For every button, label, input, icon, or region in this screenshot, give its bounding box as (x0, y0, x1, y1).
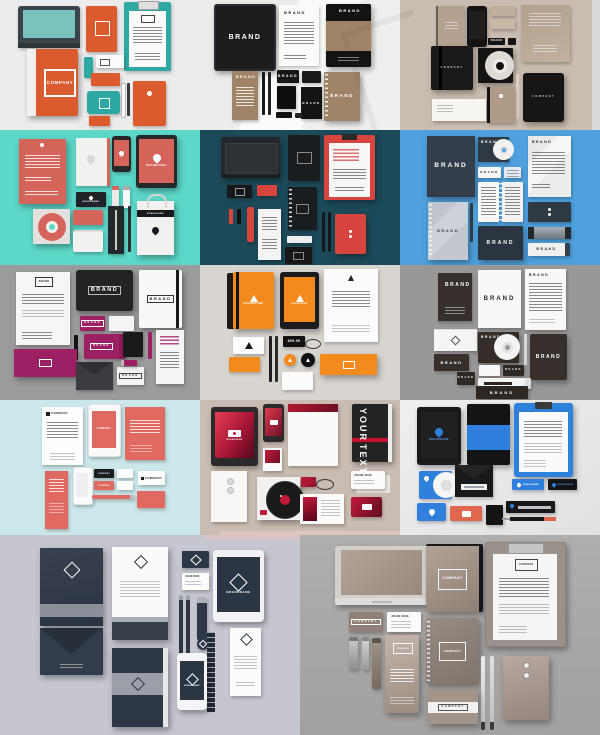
brand-wordmark: BRAND (536, 248, 556, 252)
brand-wordmark: BRAND (490, 391, 514, 395)
right-page (502, 182, 523, 222)
company-wordmark: COMPANY (397, 648, 409, 650)
letterhead: COMPANY (42, 407, 83, 465)
notebook-navy: BRAND (478, 226, 523, 260)
dot (548, 213, 551, 216)
pen-magenta (148, 332, 152, 359)
cd-hole (500, 146, 508, 154)
panel-orange-teal: COMPANY (0, 0, 200, 130)
pen-grip (544, 517, 556, 521)
notebook-black-blue (467, 404, 510, 465)
pen-bar (464, 486, 484, 488)
footer-lines (499, 626, 527, 634)
pen (470, 203, 473, 242)
logo-mark (100, 59, 110, 66)
pen (481, 656, 485, 730)
cd-disc (493, 139, 514, 160)
phone-white: BRANDNAME (177, 653, 207, 710)
cd-hole (502, 342, 513, 353)
card-wallet (87, 91, 120, 114)
panel-orange-black: BRANDNAME BRANDNAME $99.99 (200, 265, 400, 400)
open-notebook (478, 182, 523, 222)
calculator (123, 332, 143, 357)
pen (186, 595, 190, 654)
text-lines (47, 422, 78, 440)
cd-hole (46, 221, 58, 233)
clipboard-red (324, 135, 375, 200)
tag-string (305, 339, 321, 349)
phone-screen: BRANDNAME (180, 661, 204, 700)
notebook-small (133, 81, 166, 126)
clip (508, 543, 544, 554)
envelope-small: COMPANY (428, 690, 478, 724)
clip (342, 134, 357, 140)
logo-dot (349, 230, 352, 233)
company-wordmark: COMPANY (438, 704, 467, 711)
diamond-logo-icon (134, 555, 148, 569)
brand-wordmark: BRAND (39, 281, 50, 284)
magenta-lines (160, 336, 179, 346)
phone (112, 136, 131, 172)
tablet-screen: BRANDNAME (139, 139, 174, 183)
clipboard (124, 2, 171, 71)
diamond-logo-icon (229, 573, 247, 591)
left-page (478, 182, 499, 222)
pin-logo-icon (151, 153, 162, 164)
business-card-black (227, 185, 252, 198)
blue-band (467, 425, 510, 450)
phone-screen (265, 408, 282, 436)
footer-lines (25, 191, 58, 197)
logo-frame: BRAND (35, 277, 53, 287)
tube-cap (565, 227, 571, 239)
brandname-wordmark: BRANDNAME (147, 213, 164, 215)
letterhead (324, 269, 378, 342)
pencil (269, 336, 272, 382)
text-lines (25, 177, 51, 183)
tablet: BRAND (76, 270, 133, 311)
panel-brown-brand: BRAND BRAND BRAND BRAND BRAND BRAND (400, 265, 600, 400)
vinyl-record (266, 481, 304, 519)
business-card-dark: BRAND (434, 354, 469, 371)
business-card-black: BRANDNAME (76, 192, 106, 207)
cd-case (33, 209, 70, 244)
elastic-band (236, 272, 239, 329)
panel-magenta: BRAND BRAND BRAND BRAND BRAND (0, 265, 200, 400)
diamond-logo-icon (199, 640, 207, 648)
notebook-orange: BRANDNAME (233, 272, 274, 329)
diamond-logo-icon (451, 336, 461, 346)
your-word: YOUR (358, 408, 367, 442)
spiral-binding (499, 183, 502, 221)
envelope-black: BRAND (301, 87, 322, 119)
tablet: BRANDNAME (211, 407, 258, 466)
pin-logo-icon (509, 503, 515, 509)
cd-disc (494, 334, 520, 360)
pen (524, 334, 527, 365)
card-coral (137, 491, 165, 508)
logo-plate (270, 420, 278, 425)
laptop-screen (23, 10, 75, 38)
spiral-binding (427, 621, 430, 681)
business-card-magenta: BRAND (80, 316, 105, 331)
white-band: COMPANY (428, 702, 478, 713)
tree-logo-icon (288, 358, 292, 362)
tablet-screen: COMPANY (92, 411, 116, 448)
brand-wordmark: BRAND (330, 94, 354, 99)
your-text-wordmark: YOUR TEXT (358, 408, 367, 475)
company-wordmark: COMPANY (98, 473, 110, 475)
letterhead-paper (329, 143, 370, 197)
brandname-wordmark: BRANDNAME (523, 484, 539, 486)
letterhead: BRAND (525, 269, 566, 330)
brand-wordmark: BRAND (445, 283, 471, 288)
brand-wordmark: BRAND (88, 286, 121, 296)
brand-wordmark: BRAND (491, 40, 503, 43)
text-lines (49, 479, 64, 493)
logo-frame (235, 188, 245, 196)
brandname-wordmark: BRANDNAME (244, 303, 264, 306)
panel-coral-turquoise: BRANDNAME BRANDNAME BRANDNAME (0, 130, 200, 265)
brand-wordmark: BRAND (529, 274, 549, 278)
pen-horizontal (92, 495, 135, 499)
panel-navy-diamond: JOHN DOE BRANDNAME BRANDNAME (0, 535, 300, 735)
panel-black-red (200, 130, 400, 265)
company-wordmark: COMPANY (145, 477, 162, 480)
address-text (60, 664, 83, 669)
logo-frame (296, 204, 309, 214)
logo-dot (349, 235, 352, 238)
wallet-magenta: BRAND (84, 334, 126, 359)
notepad (288, 404, 338, 466)
laptop (18, 6, 80, 48)
pen (179, 595, 183, 654)
logo-frame (297, 152, 312, 164)
pen-black (237, 209, 241, 224)
john-doe-card: JOHN DOE (351, 471, 385, 489)
hang-tag-red (301, 477, 316, 487)
spiral-binding (429, 204, 432, 258)
usb-drive (276, 112, 292, 118)
contact-lines (354, 480, 374, 486)
your-text-notebook: YOUR TEXT (352, 404, 392, 462)
text-lines (284, 22, 314, 46)
text-lines (499, 578, 549, 598)
phone-screen (76, 473, 88, 497)
logo-square (46, 412, 50, 416)
pencil (275, 336, 278, 382)
vinyl-hole (280, 495, 282, 497)
brand-wordmark: BRAND (458, 377, 475, 380)
spiral-notebook: COMPANY (426, 618, 479, 684)
panel-taupe-company: COMPANY COMPANY COMPANY JOHN DOE COMPANY (300, 535, 600, 735)
cd-hole (493, 59, 507, 73)
business-card-red (257, 185, 277, 196)
spiral-notebook-gray: BRAND (428, 202, 468, 260)
cd-sleeve (478, 48, 513, 83)
notebook-white: BRAND (139, 270, 182, 328)
business-card-white-small (479, 365, 500, 376)
diamond-logo-icon (64, 562, 81, 579)
brand-wordmark: BRAND (486, 241, 514, 246)
brand-wordmark: BRAND (532, 141, 552, 145)
flyer-white (230, 628, 261, 696)
footer-lines (335, 187, 364, 193)
logo-dot (499, 94, 503, 98)
envelope-flap (76, 362, 112, 375)
usb-magenta (121, 360, 137, 366)
logo-dot (233, 432, 236, 435)
footer-lines (533, 45, 557, 53)
laptop-screen (341, 550, 422, 595)
footer-lines (332, 325, 370, 333)
tube-cap (528, 227, 534, 239)
envelope-flap (455, 465, 493, 479)
pen-bar (484, 382, 512, 385)
business-card-white (117, 469, 133, 478)
brandname-wordmark: BRANDNAME (429, 439, 449, 442)
marker-red (247, 207, 254, 242)
laptop (335, 546, 428, 605)
pen-horizontal (502, 517, 556, 521)
company-wordmark: COMPANY (442, 577, 462, 581)
usb-block (508, 38, 516, 45)
footer-lines (135, 53, 160, 60)
spine-white (388, 404, 392, 462)
text-lines (321, 500, 340, 516)
usb-drive (123, 186, 130, 208)
business-card-small (282, 372, 313, 390)
envelope-tall (503, 656, 549, 720)
shopping-bag: BRANDNAME (137, 201, 174, 255)
logo-dot (147, 91, 152, 96)
pen-box-black (506, 501, 555, 513)
notepad-small (263, 448, 282, 471)
pen-white (121, 83, 126, 118)
logo-mark (141, 15, 155, 23)
company-logo-frame: COMPANY (515, 559, 538, 571)
business-card-orange (91, 73, 120, 86)
spiral-notebook-black (288, 187, 317, 230)
pen-red (229, 209, 233, 224)
brand-wordmark: BRAND (90, 343, 113, 350)
footer-lines (532, 184, 550, 190)
laptop-base (335, 598, 428, 605)
text-lines (499, 604, 549, 614)
red-text-lines (333, 149, 359, 163)
hardcover-book: COMPANY (27, 49, 78, 116)
pen-black (127, 83, 130, 116)
business-card-navy (182, 551, 209, 568)
business-card-taupe: COMPANY (349, 612, 383, 632)
tablet-screen: BRANDNAME (215, 412, 254, 458)
company-wordmark: COMPANY (97, 428, 112, 431)
text-lines (445, 22, 458, 30)
header: COMPANY (46, 411, 68, 416)
tablet: BRANDNAME (417, 407, 461, 465)
text-lines (505, 187, 520, 215)
company-wordmark: COMPANY (98, 485, 110, 487)
contact-lines (391, 621, 411, 629)
footer-lines (529, 319, 555, 325)
business-card-black: BRANDNAME (548, 479, 577, 490)
pin-logo-icon (427, 508, 435, 516)
watermark-strip (205, 535, 300, 540)
pin-logo-icon (88, 195, 94, 201)
cd-sleeve-blue (419, 471, 452, 499)
letterhead-coral (125, 407, 165, 460)
text-lines (390, 669, 414, 682)
business-card-lines (504, 167, 521, 178)
letterhead: BRAND (16, 272, 70, 345)
letterhead: BRAND (279, 5, 319, 66)
text-lines (529, 283, 562, 311)
sleeve-logo (260, 510, 267, 515)
company-wordmark: COMPANY (351, 619, 380, 626)
pen (490, 656, 494, 730)
phone (467, 6, 487, 47)
flyer-coral (45, 471, 68, 529)
tube-tall (372, 638, 381, 689)
business-card-white: BRAND (478, 167, 501, 178)
tablet-screen: BRANDNAME (217, 557, 260, 612)
brand-square: BRAND (457, 372, 475, 385)
text-lines (262, 217, 277, 231)
company-wordmark: COMPANY (51, 412, 68, 415)
pen-box (108, 206, 124, 254)
tree-logo-icon (348, 275, 354, 281)
brand-wordmark: BRAND (302, 102, 320, 105)
diamond-logo-icon (190, 554, 201, 565)
business-card-black: COMPANY (94, 469, 114, 478)
phone-screen (469, 11, 485, 39)
clipboard-blue (514, 403, 573, 477)
brandname-wordmark: BRANDNAME (227, 439, 243, 441)
footer-lines (390, 697, 414, 704)
text-lines (130, 420, 160, 435)
tree-logo-icon (245, 342, 253, 349)
business-card-blue: BRANDNAME (512, 479, 544, 490)
diamond-logo-icon (186, 673, 199, 686)
company-wordmark: COMPANY (444, 650, 462, 653)
pen-tube (528, 227, 571, 239)
text-lines (529, 13, 561, 27)
envelope-black (455, 465, 493, 497)
business-card-black: BRAND (277, 70, 299, 83)
company-logo-frame: COMPANY (438, 569, 467, 590)
tablet: BRANDNAME (280, 272, 319, 329)
trackpad-notch (372, 601, 392, 603)
folder-navy: BRAND (427, 136, 475, 197)
envelope-navy (40, 628, 103, 675)
envelope-orange (320, 354, 377, 375)
calculator (277, 86, 296, 109)
tablet-screen: BRANDNAME (421, 412, 457, 458)
brand-wordmark: BRAND (434, 163, 467, 170)
price-text: $99.99 (288, 340, 301, 344)
text-lines (133, 27, 162, 45)
envelope-white (211, 471, 247, 522)
footer-lines (524, 460, 546, 467)
letterhead-paper: COMPANY (493, 554, 557, 640)
notepad-header (288, 404, 338, 412)
brand-wordmark: BRAND (480, 171, 498, 174)
logo-plate (362, 504, 372, 510)
brand-wordmark: BRAND (441, 361, 463, 365)
diamond-logo-icon (240, 633, 253, 646)
flyer-white (156, 330, 184, 384)
clip (138, 1, 159, 10)
logo-text: COMPANY (440, 67, 463, 70)
gray-band (112, 673, 163, 695)
phone-white (73, 467, 93, 505)
flyer-dark: BRAND (438, 273, 472, 321)
cd-sleeve-dark: BRAND (478, 332, 519, 363)
pin-logo-icon (551, 482, 557, 488)
brandname-wordmark: BRANDNAME (292, 303, 308, 305)
brandname-wordmark: BRANDNAME (83, 201, 100, 203)
logo-frame (39, 359, 52, 367)
text-lines (532, 152, 565, 174)
clasp-button (523, 672, 530, 679)
company-logo-frame: COMPANY (393, 643, 413, 654)
business-card-coral: COMPANY (94, 481, 114, 490)
tube (349, 637, 358, 670)
pen (115, 210, 118, 250)
brand-wordmark: BRAND (505, 369, 522, 372)
brand-wordmark: BRAND (339, 9, 361, 13)
business-card-stack: BRAND (117, 367, 144, 385)
john-doe-card: JOHN DOE (182, 573, 209, 590)
bag-handle (147, 194, 167, 208)
card-black-small (486, 505, 503, 525)
notebook-bottom (285, 247, 312, 264)
envelope-flap (40, 628, 102, 654)
red-block (303, 497, 317, 521)
vinyl-label (280, 495, 290, 505)
pin-logo-icon (433, 427, 444, 438)
business-card-white (109, 316, 134, 331)
envelope-magenta (14, 349, 77, 377)
footer-lines (284, 55, 306, 61)
tablet-white: COMPANY (88, 404, 121, 457)
spiral-binding (289, 189, 292, 228)
envelope-white (434, 329, 477, 351)
badge-orange (284, 354, 296, 366)
text-lines (120, 581, 160, 597)
text-lines (160, 352, 179, 368)
cd-hole (441, 480, 452, 491)
business-card-white (96, 55, 124, 68)
panel-navy-blue: BRAND BRAND BRAND BRAND BRAND (400, 130, 600, 265)
pen (268, 72, 271, 115)
brand-wordmark: BRAND (278, 75, 298, 79)
hang-tag (89, 116, 110, 126)
pin-logo-icon (118, 149, 125, 156)
pin-logo-icon (151, 226, 161, 236)
text-lines (332, 291, 370, 309)
cd-sleeve-navy: BRAND (478, 137, 509, 162)
notebook-white (76, 138, 110, 186)
pen (262, 72, 265, 115)
text-lines (22, 310, 64, 318)
text-lines (445, 307, 465, 314)
pin-logo-icon (423, 475, 430, 482)
notebook-tan (436, 6, 465, 48)
tablet-black: COMPANY (523, 73, 564, 122)
brand-wordmark: BRAND (284, 11, 306, 15)
postcard (300, 494, 344, 524)
